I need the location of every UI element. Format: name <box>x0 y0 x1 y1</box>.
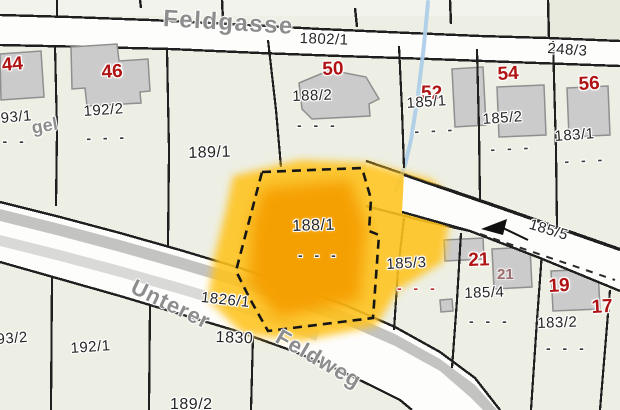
building-44 <box>0 51 44 100</box>
building-shed <box>440 299 453 312</box>
building-185-1 <box>452 67 486 127</box>
building-54 <box>497 85 546 137</box>
map-geometry <box>0 0 620 410</box>
building-50 <box>299 70 379 119</box>
building-185-3 <box>444 238 484 261</box>
north-strip <box>0 0 620 16</box>
building-46 <box>71 44 150 106</box>
parcel-248-area <box>549 0 620 39</box>
building-56 <box>567 86 610 137</box>
map-canvas[interactable]: Feldgasse gel Unterer Feldweg 1802/1 248… <box>0 0 620 410</box>
